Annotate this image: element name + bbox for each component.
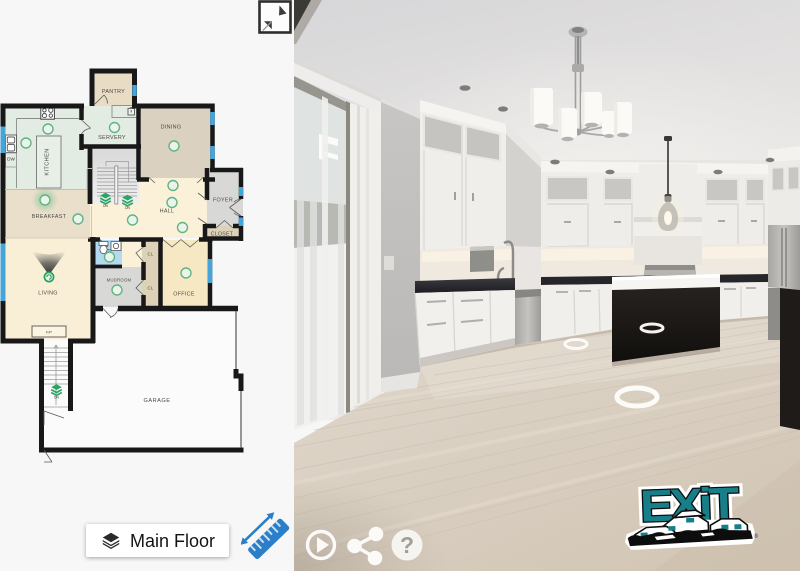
- svg-text:HALL: HALL: [160, 209, 175, 215]
- svg-text:SERVERY: SERVERY: [98, 135, 126, 141]
- svg-text:®: ®: [754, 533, 759, 540]
- svg-text:DINING: DINING: [161, 125, 182, 131]
- svg-text:BREAKFAST: BREAKFAST: [32, 214, 67, 220]
- svg-text:F/P: F/P: [46, 331, 52, 335]
- svg-text:CL: CL: [148, 286, 154, 291]
- svg-text:KITCHEN: KITCHEN: [45, 148, 51, 175]
- svg-text:OFFICE: OFFICE: [173, 292, 195, 298]
- svg-text:FOYER: FOYER: [213, 198, 233, 204]
- svg-text:DN: DN: [103, 204, 108, 208]
- svg-text:PANTRY: PANTRY: [102, 89, 125, 95]
- svg-text:DN: DN: [125, 206, 130, 210]
- svg-text:DW: DW: [7, 157, 15, 162]
- svg-text:GARAGE: GARAGE: [144, 398, 171, 404]
- svg-text:MUDROOM: MUDROOM: [107, 278, 132, 283]
- svg-text:CLOSET: CLOSET: [211, 232, 234, 238]
- svg-text:LIVING: LIVING: [38, 291, 57, 297]
- svg-text:CL: CL: [148, 252, 154, 257]
- svg-text:DN: DN: [54, 395, 59, 399]
- svg-text:?: ?: [400, 532, 414, 558]
